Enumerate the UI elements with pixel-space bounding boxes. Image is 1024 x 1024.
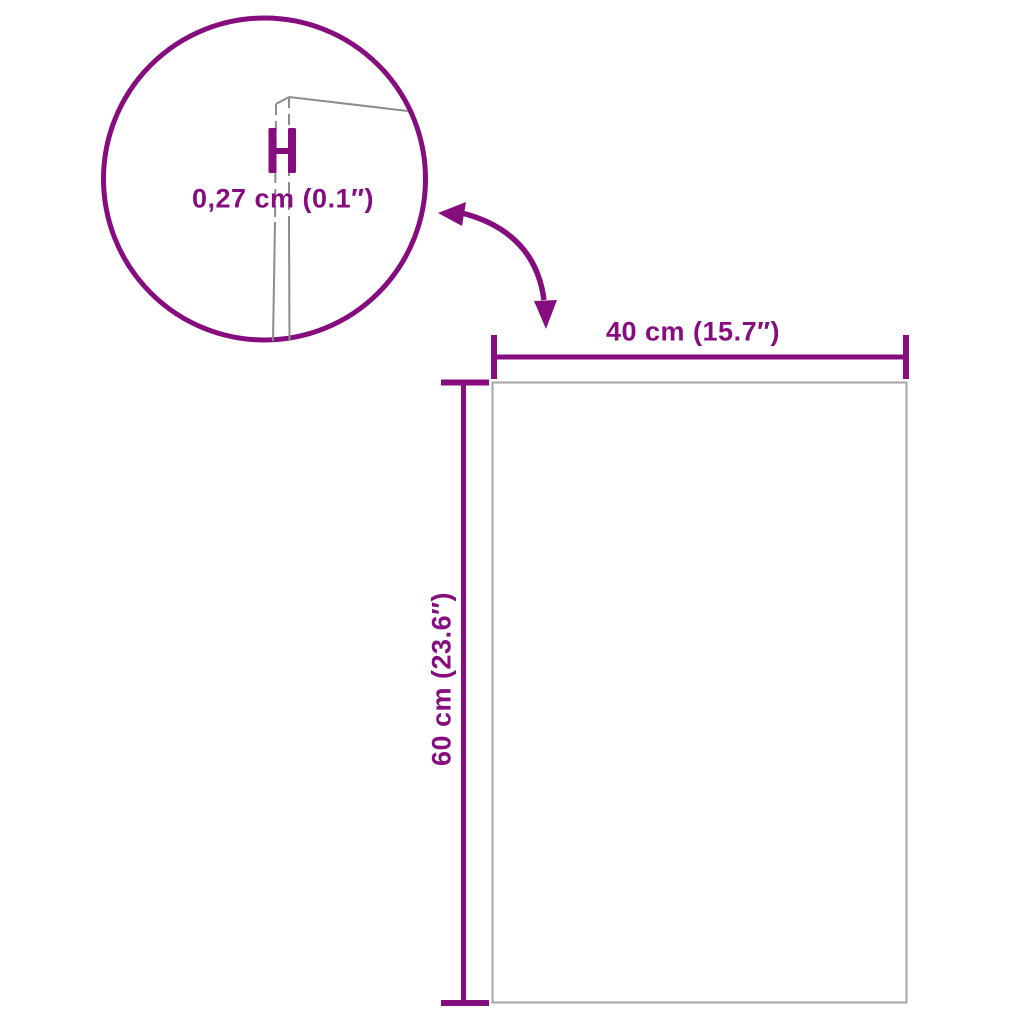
curved-arrow-shaft — [462, 213, 544, 300]
panel-top-edge — [289, 97, 408, 111]
curved-arrow-icon — [438, 202, 557, 329]
panel-left-edge-solid — [273, 222, 275, 341]
thickness-label: 0,27 cm (0.1″) — [192, 186, 374, 213]
curved-arrow-head-down — [534, 300, 557, 329]
height-label: 60 cm (23.6″) — [429, 592, 456, 766]
panel-outline — [493, 383, 907, 1003]
thickness-marker-crossbar — [271, 148, 293, 154]
panel-top-bevel — [276, 97, 289, 104]
curved-arrow-head-left — [438, 202, 466, 226]
panel-right-edge-solid — [289, 222, 290, 341]
thickness-marker-icon — [269, 128, 297, 173]
product-dimension-diagram: 0,27 cm (0.1″) 40 cm (15.7″) 60 cm (23.6… — [0, 0, 1024, 1024]
zoom-detail-circle — [104, 18, 426, 340]
diagram-graphics — [0, 0, 1024, 1024]
width-label: 40 cm (15.7″) — [606, 319, 780, 346]
